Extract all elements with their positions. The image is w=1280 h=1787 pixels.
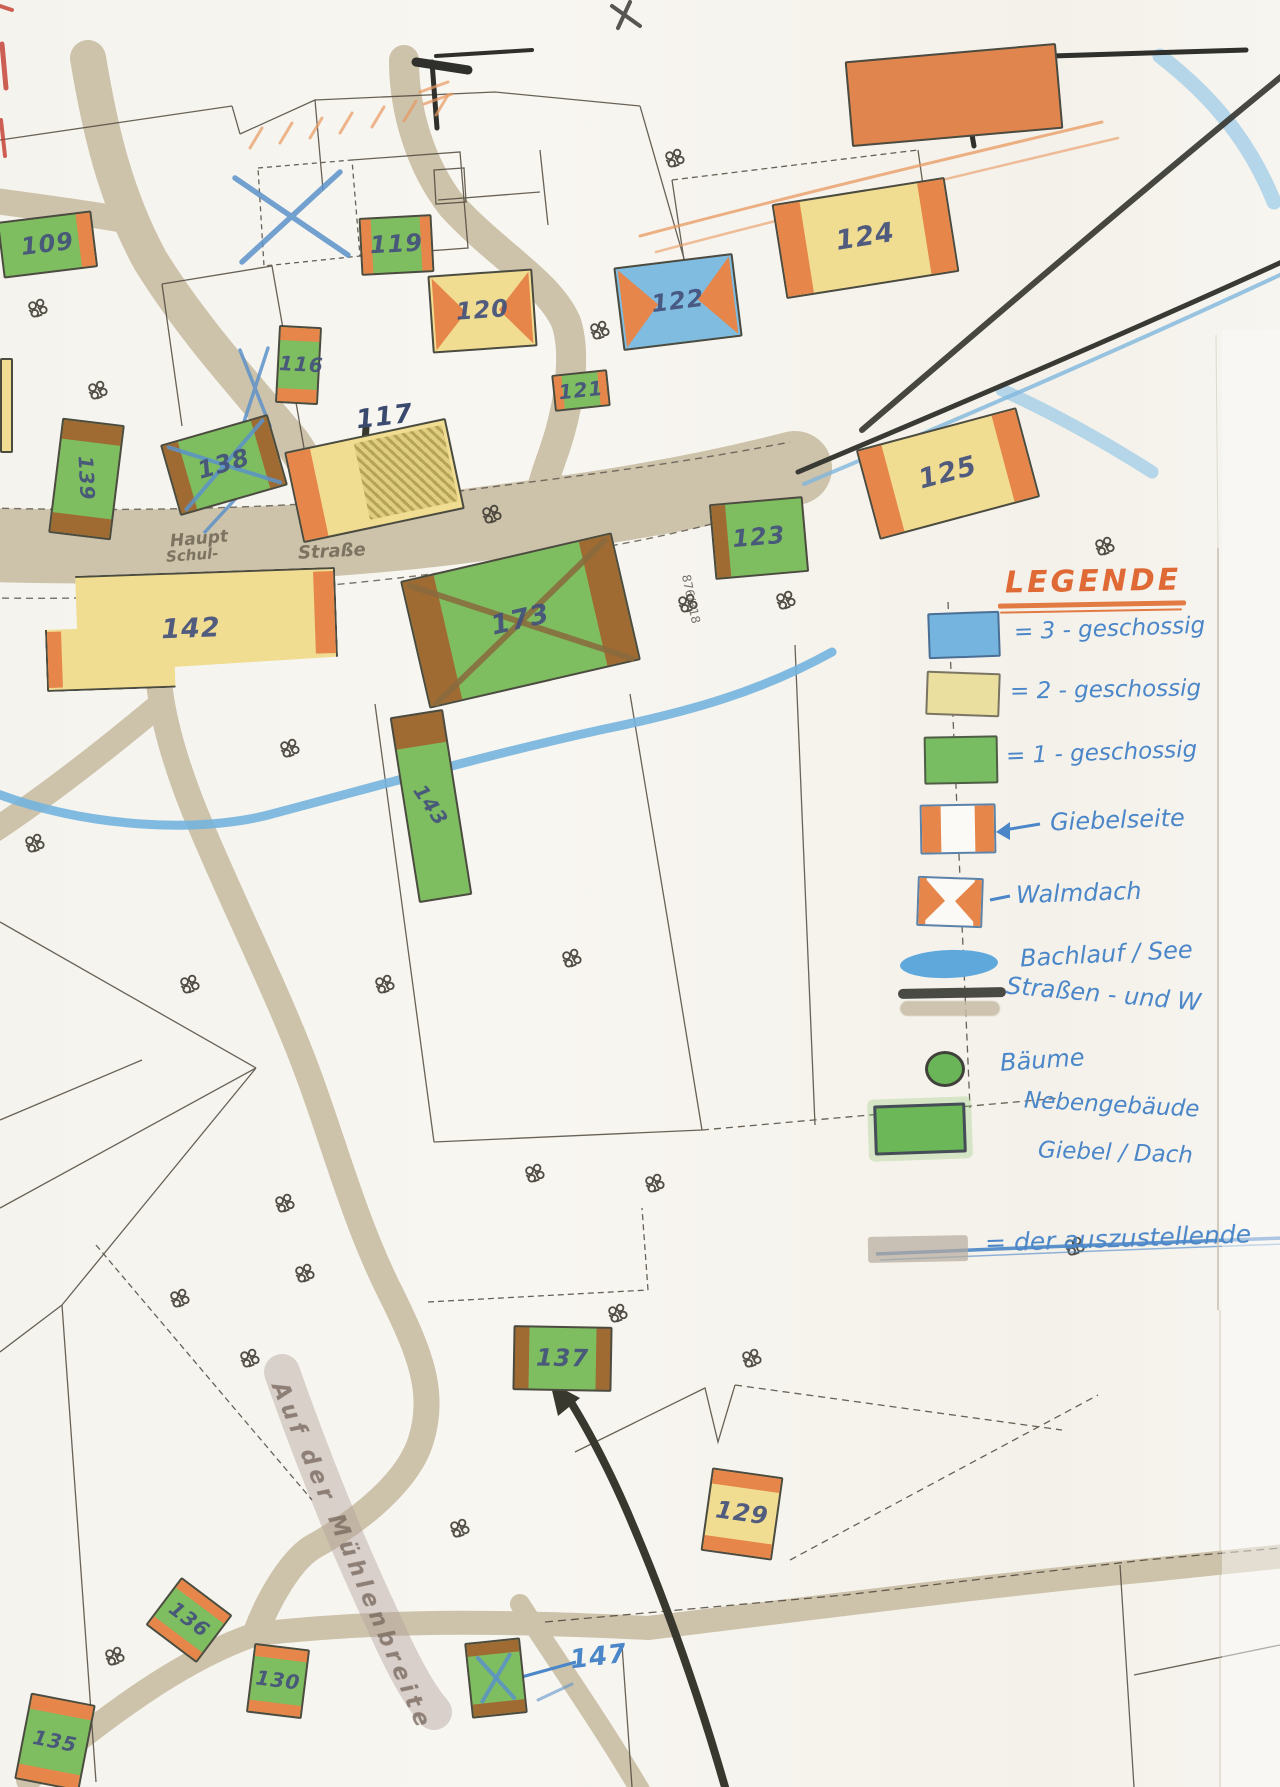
street-name-label: Straße (297, 539, 366, 564)
legend-swatch-3-storey (927, 611, 1001, 659)
legend-swatch-to-exhibit (868, 1235, 968, 1263)
building-number: 143 (407, 778, 455, 833)
legend-swatch-trees (925, 1051, 965, 1087)
gable-cap (277, 388, 317, 403)
building-number: 137 (515, 1343, 610, 1373)
building-number: 130 (251, 1665, 306, 1695)
gable-cap (62, 420, 123, 446)
building-number: 119 (361, 228, 431, 260)
building-121: 121 (551, 369, 611, 412)
legend-swatch-outbuilding (873, 1102, 967, 1155)
building-number: 138 (168, 436, 280, 493)
gable-cap (280, 327, 320, 342)
building-number: 135 (22, 1723, 87, 1758)
building-number: 142 (47, 608, 336, 649)
building-122: 122 (613, 253, 742, 351)
red-edge-marks (0, 6, 12, 156)
hip-right-triangle (954, 880, 975, 923)
ink-marks (416, 2, 1246, 146)
legend-label-2-storey: = 2 - geschossig (1010, 675, 1202, 704)
legend-label-trees: Bäume (999, 1043, 1085, 1077)
page-margin (1222, 330, 1280, 1787)
street-name-label: Schul- (165, 544, 219, 566)
building-unnumbered (0, 358, 13, 453)
building-137: 137 (512, 1325, 612, 1392)
building-unnumbered (845, 43, 1064, 147)
legend-label-outbuilding-2: Giebel / Dach (1038, 1137, 1194, 1168)
legend-swatch-hip-roof (916, 876, 984, 928)
legend-swatch-road-tan (900, 1001, 1000, 1016)
scanned-cadastral-map-page: 1091191201221241161211381391251231731421… (0, 0, 1280, 1787)
legend-swatch-road-dark (898, 987, 1006, 999)
building-number: 124 (778, 208, 952, 265)
hip-left-triangle (924, 879, 945, 922)
legend-label-gable-side: Giebelseite (1050, 804, 1186, 837)
building-147 (464, 1637, 528, 1718)
building-number: 123 (713, 519, 805, 555)
legend-swatch-2-storey (925, 671, 1000, 718)
legend-title: LEGENDE (1005, 562, 1182, 600)
building-129: 129 (701, 1467, 784, 1560)
cross-out-mark (480, 1652, 513, 1704)
building-120: 120 (427, 268, 537, 353)
gable-cap (392, 711, 446, 750)
building-130: 130 (246, 1643, 310, 1719)
legend-swatch-gable-side (920, 803, 997, 854)
building-number: 139 (73, 448, 100, 508)
building-number: 129 (707, 1494, 778, 1531)
gable-left-bar (922, 806, 942, 852)
building-116: 116 (275, 325, 322, 405)
building-number: 125 (865, 436, 1030, 508)
building-123: 123 (709, 496, 809, 580)
gable-right-bar (975, 805, 995, 851)
gable-cap (255, 1645, 308, 1662)
legend-label-hip-roof: Walmdach (1016, 877, 1142, 909)
building-119: 119 (359, 214, 435, 276)
building-109: 109 (0, 210, 98, 278)
building-number: 116 (278, 351, 318, 377)
legend-swatch-1-storey (924, 735, 999, 784)
pencil-scribble (353, 424, 457, 519)
